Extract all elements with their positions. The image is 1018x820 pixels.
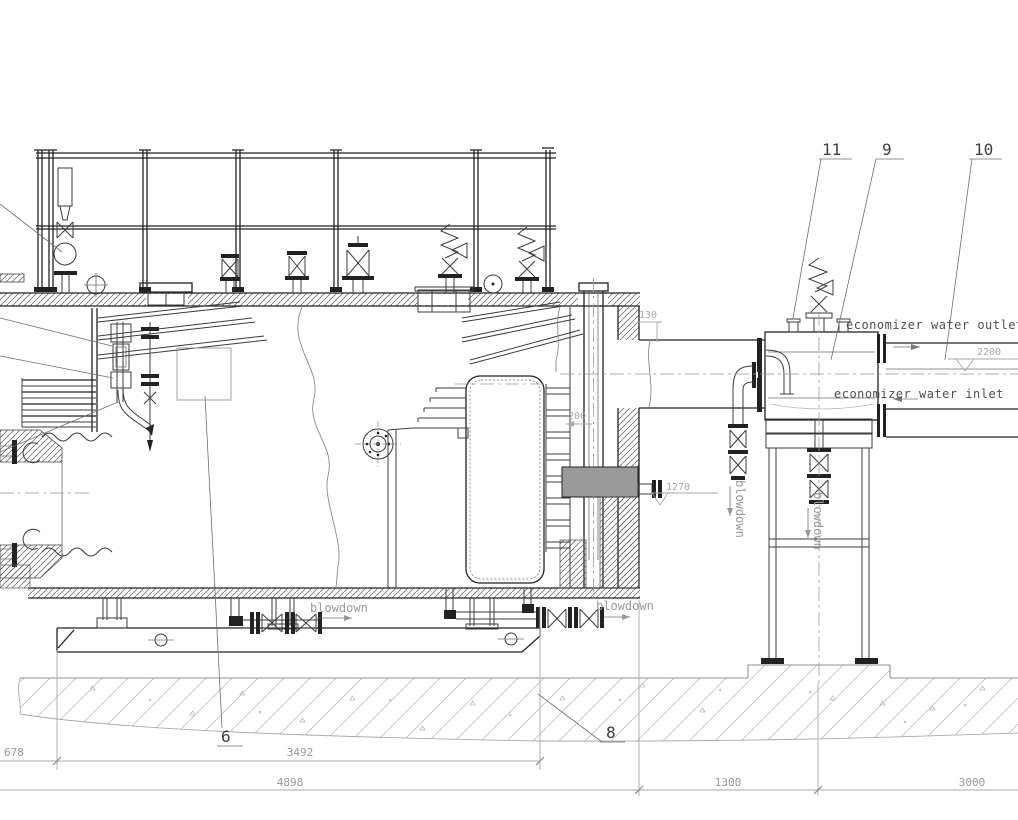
dim-front-overhang: 678 (4, 746, 24, 759)
label-blowdown-duct-drain: blowdown (733, 480, 747, 538)
boiler-economizer-drawing: 678 3492 4898 1300 3000 130 200 2200 127… (0, 0, 1018, 820)
drum-manhole-cover (140, 283, 192, 305)
wall-drain-nozzle (638, 480, 662, 498)
label-blowdown-front: blowdown (310, 601, 368, 615)
label-economizer-water-outlet: economizer water outlet (846, 318, 1018, 332)
main-steam-valve (342, 236, 374, 293)
safety-valve-1 (438, 224, 467, 293)
drawing-canvas: 678 3492 4898 1300 3000 130 200 2200 127… (0, 0, 1018, 820)
skid-base-frame (57, 628, 540, 652)
floor-insulation (28, 588, 640, 598)
stop-valve-2 (285, 251, 309, 293)
callout-9: 9 (882, 140, 892, 159)
section-break-left (298, 307, 339, 588)
rear-wall-upper (618, 306, 639, 340)
dim-drum-wall-gap-group: 200 (566, 411, 592, 427)
platform-railing (34, 148, 556, 292)
level-2200-value: 2200 (977, 347, 1001, 358)
dim-drum-wall-gap: 200 (568, 411, 586, 422)
callout-10: 10 (974, 140, 993, 159)
inlet-duct (886, 396, 1018, 437)
water-level-gauge (111, 322, 159, 452)
outlet-flow-arrow (911, 344, 920, 350)
level-1270-value: 1270 (666, 482, 690, 493)
foundation (19, 665, 1018, 741)
nameplate (177, 348, 231, 400)
rear-drum (466, 376, 544, 583)
label-blowdown-economizer-drain: blowdown (811, 492, 825, 550)
dim-flue-offset-group: 130 (637, 310, 662, 342)
label-economizer-water-inlet: economizer water inlet (834, 387, 1004, 401)
level-2200: 2200 (948, 347, 1018, 371)
stepped-tubes (412, 388, 466, 428)
flue-outlet-box (562, 467, 638, 497)
dim-flue-offset: 130 (639, 310, 657, 321)
rear-inclined-tubes (462, 302, 583, 364)
economizer-top-stubs (787, 319, 850, 332)
callout-6: 6 (221, 727, 231, 746)
callout-8: 8 (606, 723, 616, 742)
water-column-assembly (54, 168, 77, 293)
soil-hatch-area (20, 665, 1018, 741)
dim-economizer-bay: 3000 (959, 776, 986, 789)
label-blowdown-rear: blowdown (596, 599, 654, 613)
dim-skid-length: 3492 (287, 746, 314, 759)
manhole (355, 421, 401, 467)
tube-bank (22, 378, 96, 427)
downcomer-pipe (388, 428, 412, 588)
economizer-body (765, 332, 878, 420)
safety-valve-2 (515, 227, 544, 293)
economizer-safety-valve (806, 258, 833, 332)
boiler-top-fittings (54, 168, 544, 312)
boiler-supports (97, 598, 498, 629)
flue-stack (560, 283, 662, 588)
dim-boiler-length: 4898 (277, 776, 304, 789)
burner-opening (0, 430, 62, 588)
flow-labels: economizer water outlet economizer water… (310, 318, 1018, 615)
callout-11: 11 (822, 140, 841, 159)
dim-boiler-to-economizer: 1300 (715, 776, 742, 789)
